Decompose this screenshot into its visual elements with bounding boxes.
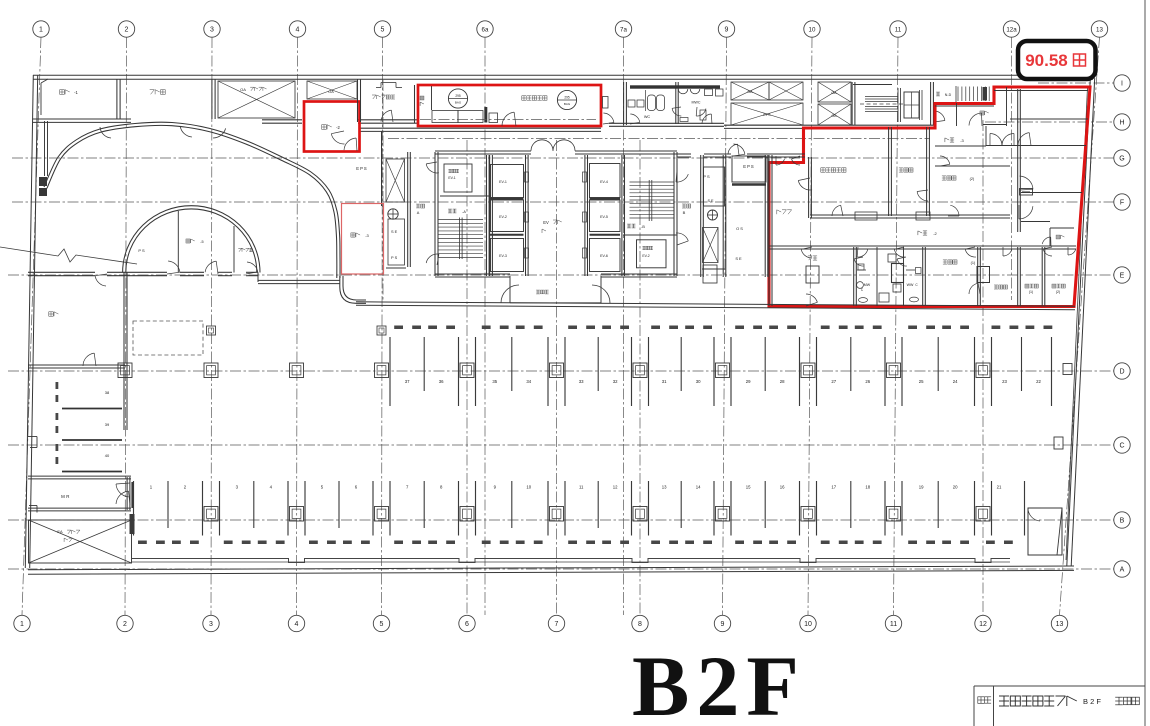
svg-text:I: I	[1121, 81, 1123, 88]
svg-text:21: 21	[997, 485, 1002, 490]
svg-text:7a: 7a	[620, 27, 627, 34]
svg-text:40: 40	[105, 453, 110, 458]
svg-text:WW: WW	[907, 283, 914, 287]
svg-text:13: 13	[662, 485, 667, 490]
svg-text:27: 27	[831, 379, 836, 384]
svg-text:6: 6	[465, 621, 469, 628]
svg-text:11: 11	[579, 485, 584, 490]
svg-text:31: 31	[662, 379, 667, 384]
svg-text:E: E	[1120, 273, 1125, 280]
svg-text:EPS: EPS	[743, 164, 754, 169]
svg-text:23: 23	[1002, 379, 1007, 384]
svg-text:B 2 F: B 2 F	[1083, 697, 1101, 706]
svg-text:EV-5: EV-5	[600, 215, 608, 219]
svg-text:5: 5	[380, 621, 384, 628]
svg-text:EV-1: EV-1	[448, 176, 455, 180]
svg-text:EV-6: EV-6	[600, 254, 608, 258]
svg-text:EV-1: EV-1	[499, 180, 507, 184]
svg-text:35: 35	[492, 379, 497, 384]
svg-text:-2: -2	[336, 125, 340, 130]
svg-text:9: 9	[721, 621, 725, 628]
svg-text:PS: PS	[391, 255, 398, 260]
svg-text:3: 3	[210, 27, 214, 34]
svg-text:38: 38	[105, 390, 110, 395]
svg-text:C: C	[1119, 443, 1124, 450]
svg-text:BAG: BAG	[455, 101, 462, 105]
svg-text:1: 1	[39, 27, 43, 34]
svg-text:32: 32	[613, 379, 618, 384]
svg-text:B2F: B2F	[632, 638, 806, 726]
svg-text:4: 4	[296, 27, 300, 34]
svg-text:EV-4: EV-4	[600, 180, 608, 184]
svg-text:2: 2	[125, 27, 129, 34]
svg-text:PS: PS	[138, 248, 145, 253]
svg-text:28: 28	[780, 379, 785, 384]
svg-text:OS: OS	[736, 226, 744, 231]
svg-text:19: 19	[919, 485, 924, 490]
svg-text:33: 33	[579, 379, 584, 384]
svg-text:29: 29	[746, 379, 751, 384]
svg-text:MR: MR	[61, 494, 71, 499]
svg-text:20: 20	[953, 485, 958, 490]
svg-text:B: B	[683, 210, 686, 215]
svg-text:12: 12	[613, 485, 618, 490]
svg-text:26: 26	[865, 379, 870, 384]
svg-text:N-D: N-D	[945, 93, 952, 97]
svg-text:18: 18	[865, 485, 870, 490]
svg-text:EPS: EPS	[356, 166, 367, 171]
svg-text:F: F	[1120, 200, 1124, 207]
svg-text:D: D	[1119, 369, 1124, 376]
svg-text:SE: SE	[735, 256, 742, 261]
svg-text:PS: PS	[703, 174, 710, 179]
svg-text:22: 22	[1036, 379, 1041, 384]
svg-text:4: 4	[295, 621, 299, 628]
svg-text:(2): (2)	[970, 177, 975, 181]
svg-text:10: 10	[804, 621, 812, 628]
svg-text:10: 10	[809, 27, 816, 34]
svg-text:15: 15	[746, 485, 751, 490]
svg-text:10: 10	[526, 485, 531, 490]
svg-text:24: 24	[953, 379, 958, 384]
svg-text:30: 30	[696, 379, 701, 384]
svg-text:11: 11	[895, 27, 902, 34]
svg-text:17: 17	[831, 485, 836, 490]
svg-text:(1): (1)	[1029, 290, 1033, 294]
svg-text:EV-3: EV-3	[499, 254, 507, 258]
svg-text:5: 5	[381, 27, 385, 34]
svg-text:(2): (2)	[1056, 290, 1060, 294]
svg-text:OA: OA	[831, 114, 837, 118]
svg-text:B: B	[1120, 518, 1125, 525]
svg-text:1: 1	[20, 621, 24, 628]
svg-text:EA: EA	[57, 529, 63, 534]
svg-text:G: G	[1119, 156, 1124, 163]
svg-text:SE: SE	[707, 199, 714, 203]
svg-text:13: 13	[1096, 27, 1103, 34]
svg-text:OA: OA	[240, 87, 246, 92]
svg-text:EV-2: EV-2	[642, 254, 649, 258]
svg-text:12a: 12a	[1006, 27, 1017, 34]
svg-text:16: 16	[780, 485, 785, 490]
svg-text:36: 36	[439, 379, 444, 384]
svg-text:11: 11	[890, 621, 897, 628]
svg-text:8: 8	[638, 621, 642, 628]
svg-text:EPS: EPS	[763, 113, 771, 117]
svg-text:OA: OA	[747, 90, 753, 94]
svg-text:A: A	[1120, 567, 1125, 574]
svg-text:6a: 6a	[482, 27, 489, 34]
svg-text:37: 37	[405, 379, 410, 384]
svg-text:EV: EV	[543, 220, 549, 225]
svg-text:H: H	[1119, 120, 1124, 127]
svg-text:34: 34	[526, 379, 531, 384]
svg-text:MWC: MWC	[692, 101, 701, 105]
svg-text:SE: SE	[391, 229, 398, 234]
svg-text:12: 12	[979, 621, 987, 628]
svg-text:90.58: 90.58	[1025, 51, 1068, 70]
svg-text:9: 9	[725, 27, 729, 34]
svg-text:-A: -A	[462, 210, 466, 214]
svg-text:-1: -1	[74, 90, 78, 95]
svg-text:A: A	[417, 210, 420, 215]
svg-text:-5: -5	[200, 240, 203, 244]
svg-text:MW: MW	[864, 283, 871, 287]
svg-text:14: 14	[696, 485, 701, 490]
svg-text:-B: -B	[641, 225, 645, 229]
svg-text:2: 2	[123, 621, 127, 628]
svg-text:OA: OA	[328, 90, 334, 94]
svg-text:39: 39	[105, 422, 110, 427]
svg-text:13: 13	[1056, 621, 1064, 628]
svg-text:EV-2: EV-2	[499, 215, 507, 219]
svg-text:WC: WC	[644, 115, 651, 119]
svg-text:3: 3	[209, 621, 213, 628]
svg-text:OA: OA	[831, 91, 837, 95]
svg-text:BAG: BAG	[564, 102, 571, 106]
svg-text:7: 7	[555, 621, 559, 628]
svg-text:295: 295	[455, 94, 461, 98]
svg-text:295: 295	[564, 96, 570, 100]
svg-text:(1): (1)	[971, 261, 976, 265]
svg-text:25: 25	[919, 379, 924, 384]
